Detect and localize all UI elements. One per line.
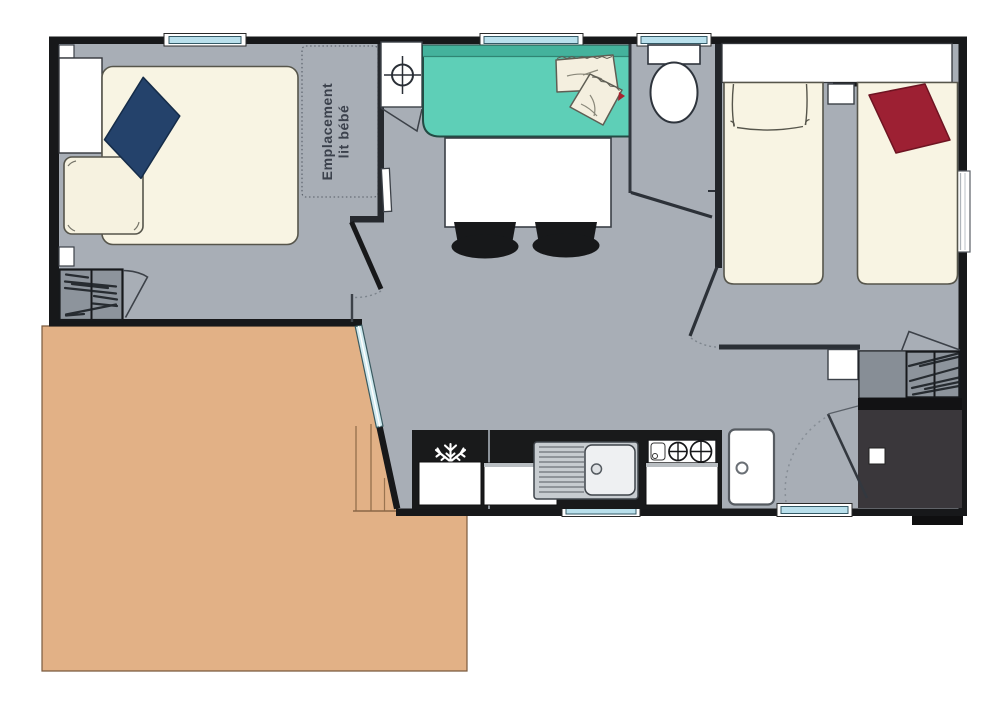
svg-text:Emplacement: Emplacement (319, 83, 335, 181)
svg-text:lit bébé: lit bébé (336, 105, 352, 159)
